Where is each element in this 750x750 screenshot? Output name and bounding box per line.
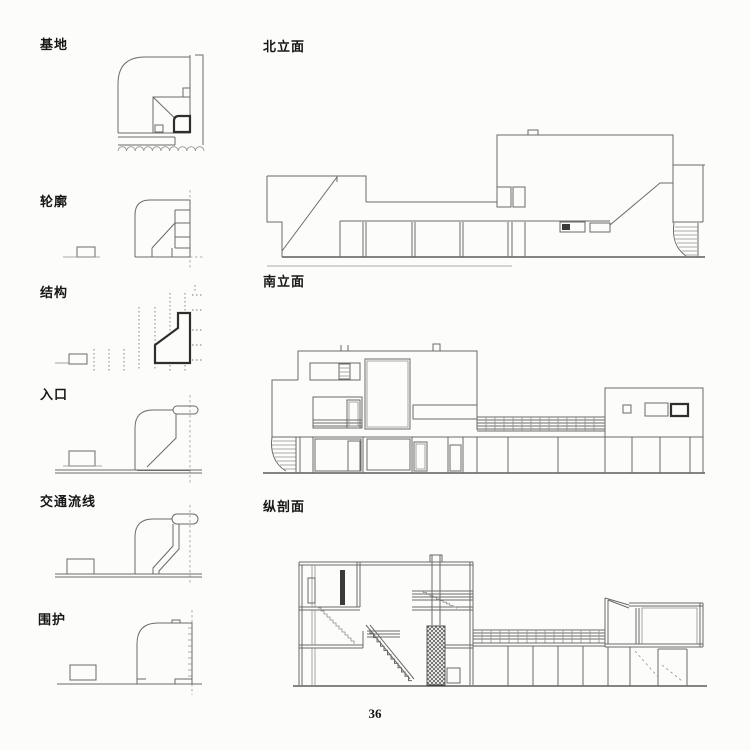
- outline-diagram: [55, 190, 205, 270]
- site-diagram: [112, 50, 208, 158]
- label-south-elevation: 南立面: [263, 271, 305, 290]
- north-elevation-drawing: [262, 122, 708, 272]
- label-north-elevation: 北立面: [263, 36, 305, 55]
- structure-diagram: [55, 285, 205, 377]
- south-elevation-drawing: [262, 338, 708, 478]
- label-section: 纵剖面: [263, 496, 305, 515]
- label-site: 基地: [40, 34, 68, 53]
- longitudinal-section-drawing: [262, 545, 710, 695]
- circulation-diagram: [50, 505, 205, 585]
- enclosure-diagram: [55, 610, 205, 695]
- page-number: 36: [0, 706, 750, 722]
- entrance-diagram: [50, 395, 205, 483]
